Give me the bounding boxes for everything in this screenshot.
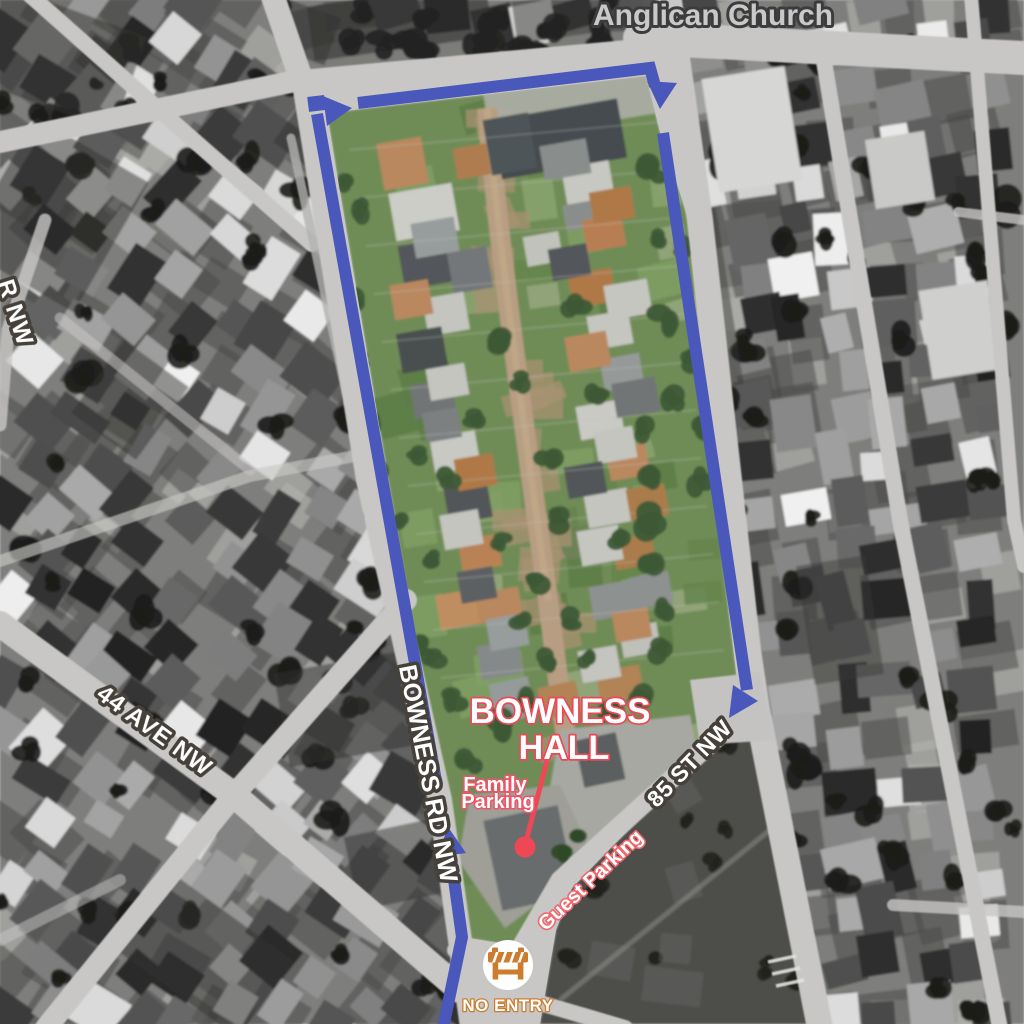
svg-text:BOWNESS: BOWNESS xyxy=(470,692,651,731)
svg-text:Parking: Parking xyxy=(461,791,534,813)
svg-text:HALL: HALL xyxy=(519,729,610,767)
svg-text:NO ENTRY: NO ENTRY xyxy=(462,996,553,1015)
svg-text:Anglican Church: Anglican Church xyxy=(593,0,833,32)
